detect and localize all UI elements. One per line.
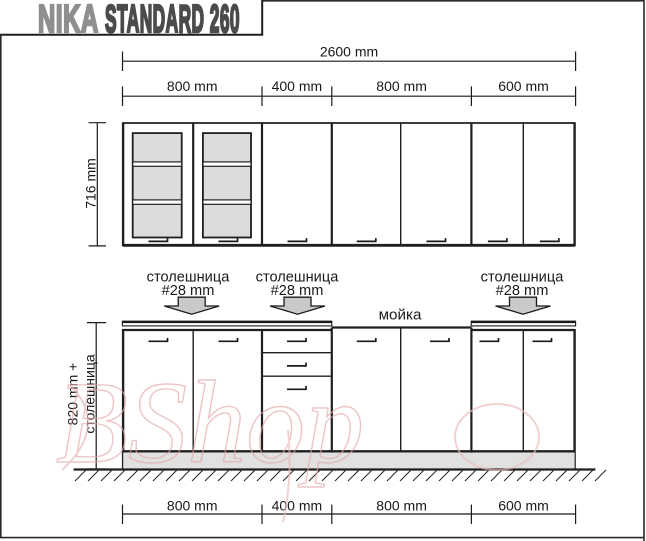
svg-text:STANDARD 260: STANDARD 260 — [105, 0, 240, 41]
svg-text:2600 mm: 2600 mm — [320, 44, 378, 60]
svg-text:400 mm: 400 mm — [272, 497, 323, 513]
svg-text:716 mm: 716 mm — [83, 158, 99, 209]
svg-text:800 mm: 800 mm — [167, 78, 218, 94]
svg-text:600 mm: 600 mm — [498, 497, 549, 513]
svg-text:NIKA: NIKA — [38, 0, 99, 40]
svg-text:мойка: мойка — [379, 306, 422, 323]
svg-text:600 mm: 600 mm — [498, 78, 549, 94]
svg-text:BShop: BShop — [56, 357, 364, 488]
svg-text:800 mm: 800 mm — [376, 497, 427, 513]
svg-text:800 mm: 800 mm — [167, 497, 218, 513]
svg-text:400 mm: 400 mm — [272, 78, 323, 94]
svg-text:800 mm: 800 mm — [376, 78, 427, 94]
